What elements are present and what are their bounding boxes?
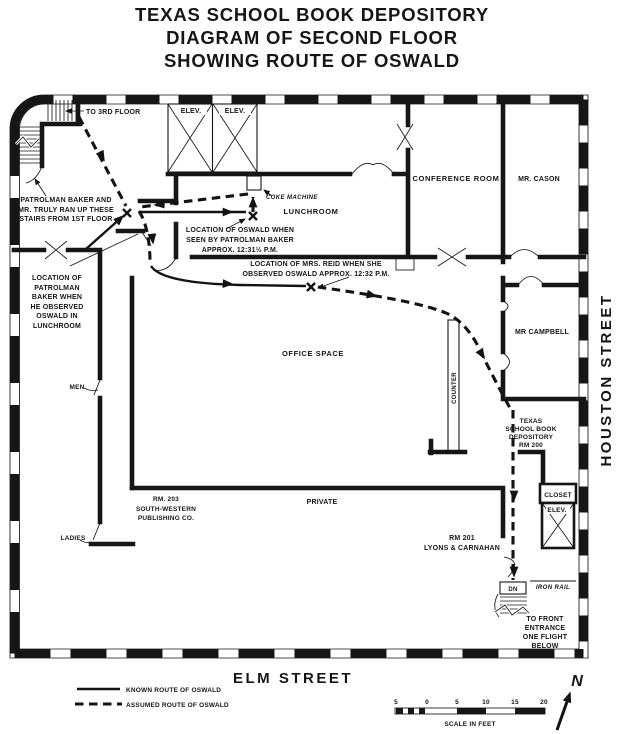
tsbd-line1: TEXAS [520,418,543,425]
assumed-route-office-east [318,287,510,408]
front-line2: ENTRANCE [525,625,566,632]
private-label: PRIVATE [307,499,338,506]
dn-break-mask [495,605,529,615]
legend-assumed-label: ASSUMED ROUTE OF OSWALD [126,702,229,709]
office-nw-door-swing [153,258,176,271]
coke-machine-label: COKE MACHINE [266,195,318,201]
southeast-service-area [495,484,576,617]
baker-loc-line2: PATROLMAN [34,285,79,292]
baker-truly-line3: STAIRS FROM 1ST FLOOR [19,216,112,223]
oswald-seen-line2: SEEN BY PATROLMAN BAKER [186,237,294,244]
conference-west-door-x [397,124,413,150]
conference-south-door-x [438,248,466,266]
reid-line1: LOCATION OF MRS. REID WHEN SHE [250,261,382,268]
lunchroom-label: LUNCHROOM [284,207,339,216]
scale-seg-e [515,708,545,714]
cason-door-swing [510,250,539,258]
stair-door-swing [26,166,42,183]
elevator-right-label: ELEV. [225,108,246,115]
elevator-left-label: ELEV. [181,108,202,115]
front-line3: ONE FLIGHT [523,634,568,641]
scale-seg-c [419,708,425,714]
north-arrow: N [557,673,583,730]
baker-truly-annotation: PATROLMAN BAKER AND MR. TRULY RAN UP THE… [18,197,114,223]
window-inner-line [20,104,580,649]
mr-cason-label: MR. CASON [518,176,560,183]
wall-vestibule-corridor [14,201,176,544]
baker-loc-line1: LOCATION OF [32,275,82,282]
rm201-annotation: RM 201 LYONS & CARNAHAN [424,535,500,552]
stairs-upper-treads [48,100,76,121]
elevator-shafts: ELEV. ELEV. [168,104,257,172]
baker-location-annotation: LOCATION OF PATROLMAN BAKER WHEN HE OBSE… [30,275,83,330]
leader-reid-location [318,277,349,288]
ladies-label: LADIES [60,535,85,542]
closet-label: CLOSET [544,492,572,499]
tsbd-line3: DEPOSITORY [509,434,554,441]
reid-location-annotation: LOCATION OF MRS. REID WHEN SHE OBSERVED … [242,261,389,278]
houston-street-label: HOUSTON STREET [598,293,615,466]
scale-num-3: 5 [455,699,459,706]
scale-num-4: 10 [482,699,490,706]
ladies-door-leaf [93,523,100,540]
counter-label: COUNTER [452,372,458,404]
door-jamb-detail [396,258,414,270]
corridor-north-door-x [45,241,67,259]
reid-line2: OBSERVED OSWALD APPROX. 12:32 P.M. [242,271,389,278]
wall-corner-arc [15,100,45,130]
corridor-door-swing [518,277,544,286]
scale-seg-d [457,708,486,714]
oswald-seen-line3: APPROX. 12:31½ P.M. [202,246,278,254]
small-elevator-label: ELEV. [547,507,566,514]
scale-seg-b [408,708,414,714]
arrow-around-counter [472,338,484,358]
oswald-seen-line1: LOCATION OF OSWALD WHEN [186,227,294,234]
baker-truly-line2: MR. TRULY RAN UP THESE [18,207,114,214]
baker-loc-line3: BAKER WHEN [32,294,82,301]
rm201-line1: RM 201 [449,535,475,542]
north-arrow-head [561,693,570,719]
title-line-2: DIAGRAM OF SECOND FLOOR [166,27,458,48]
men-door-leaf [94,380,100,395]
rm203-line2: SOUTH-WESTERN [136,506,196,513]
scale-num-1: 5 [394,699,398,706]
scale-num-2: 0 [425,699,429,706]
front-line4: BELOW [531,643,558,650]
scale-bar: 5 0 5 10 15 20 SCALE IN FEET [394,699,548,728]
baker-loc-line4: HE OBSERVED [30,304,83,311]
dn-stair-rail-curve [495,594,499,617]
rm203-line3: PUBLISHING CO. [138,515,194,522]
arrow-vestibule-down [151,226,153,243]
rm201-line2: LYONS & CARNAHAN [424,545,500,552]
men-label: MEN [69,384,84,391]
conference-room-label: CONFERENCE ROOM [413,174,500,183]
iron-rail-label: IRON RAIL [536,585,570,591]
rm203-annotation: RM. 203 SOUTH-WESTERN PUBLISHING CO. [136,496,196,522]
baker-loc-line5: OSWALD IN [36,313,77,320]
baker-truly-line1: PATROLMAN BAKER AND [20,197,111,204]
mr-campbell-label: MR CAMPBELL [515,329,569,336]
legend-known-label: KNOWN ROUTE OF OSWALD [126,687,221,694]
dn-label: DN [508,587,517,593]
assumed-route-stairs [79,117,126,206]
legend: KNOWN ROUTE OF OSWALD ASSUMED ROUTE OF O… [75,687,229,709]
office-space-label: OFFICE SPACE [282,349,344,358]
x-mark-reid-sighting [307,283,315,291]
baker-loc-line6: LUNCHROOM [33,323,81,330]
rm203-line1: RM. 203 [153,496,179,503]
front-entrance-annotation: TO FRONT ENTRANCE ONE FLIGHT BELOW [523,616,568,650]
front-line1: TO FRONT [526,616,564,623]
scale-num-5: 15 [511,699,519,706]
coke-machine-box [247,176,261,190]
title-line-3: SHOWING ROUTE OF OSWALD [164,50,460,71]
diagram-title: TEXAS SCHOOL BOOK DEPOSITORY DIAGRAM OF … [135,4,489,71]
x-mark-stair-landing [123,209,131,217]
elm-street-label: ELM STREET [233,670,353,687]
floor-plan-diagram: TEXAS SCHOOL BOOK DEPOSITORY DIAGRAM OF … [0,0,619,734]
title-line-1: TEXAS SCHOOL BOOK DEPOSITORY [135,4,489,25]
interior-walls [14,98,584,544]
leader-baker-truly [35,179,46,196]
north-letter: N [571,673,583,690]
assumed-route-vestibule [139,211,150,263]
x-mark-oswald-lunchroom [249,212,257,220]
oswald-seen-annotation: LOCATION OF OSWALD WHEN SEEN BY PATROLMA… [186,227,294,254]
to-3rd-floor-label: TO 3RD FLOOR [86,109,140,116]
tsbd-line2: SCHOOL BOOK [505,426,556,433]
scale-seg-a [396,708,403,714]
tsbd-line4: RM 200 [519,442,543,449]
scale-num-6: 20 [540,699,548,706]
lunchroom-door-swing [352,163,394,174]
scale-caption: SCALE IN FEET [444,721,495,728]
wall-campbell [503,257,584,399]
